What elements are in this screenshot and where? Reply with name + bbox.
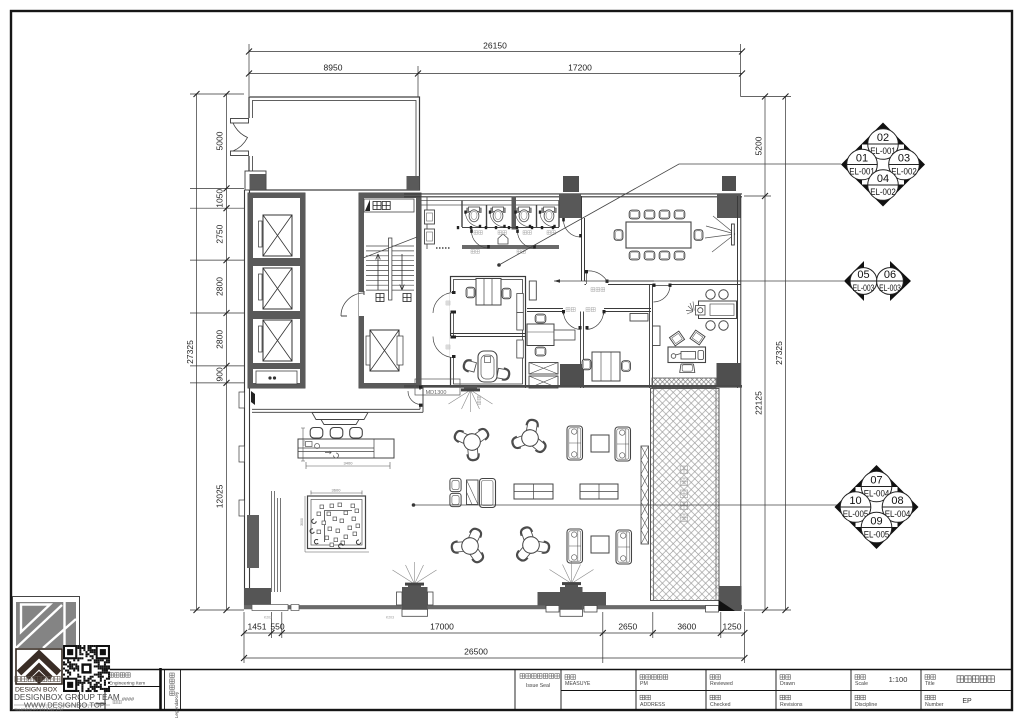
svg-text:09: 09	[870, 516, 882, 528]
svg-text:ADDRESS: ADDRESS	[640, 702, 666, 708]
svg-text:12025: 12025	[215, 484, 225, 508]
svg-text:3600: 3600	[332, 488, 342, 493]
svg-text:Engineering Item: Engineering Item	[109, 681, 145, 687]
svg-text:27325: 27325	[185, 340, 195, 364]
svg-text:MD1300: MD1300	[426, 390, 447, 396]
svg-text:Title: Title	[925, 681, 935, 687]
svg-text:Checked: Checked	[710, 702, 731, 708]
svg-text:1250: 1250	[723, 622, 742, 632]
svg-text:EL-003: EL-003	[853, 283, 875, 293]
svg-text:3600: 3600	[677, 622, 696, 632]
svg-text:Number: Number	[925, 702, 944, 708]
svg-text:Reviewed: Reviewed	[710, 681, 733, 687]
svg-text:08: 08	[891, 495, 903, 507]
svg-text:TEL&WECHAT 171-5489-5467: TEL&WECHAT 171-5489-5467	[14, 708, 64, 712]
svg-text:27325: 27325	[774, 341, 784, 365]
svg-text:Drawn: Drawn	[780, 681, 795, 687]
svg-text:5200: 5200	[754, 136, 764, 155]
svg-text:3000: 3000	[300, 518, 304, 526]
svg-text:5000: 5000	[215, 131, 225, 150]
svg-text:####: ####	[122, 697, 135, 703]
svg-text:22125: 22125	[754, 391, 764, 415]
svg-text:Scale: Scale	[855, 681, 868, 687]
svg-text:Legend&Key: Legend&Key	[174, 691, 179, 718]
svg-text:MEASUYE: MEASUYE	[565, 681, 591, 687]
svg-text:06: 06	[884, 269, 896, 281]
svg-text:550: 550	[270, 622, 284, 632]
svg-text:Issue Seal: Issue Seal	[526, 683, 550, 689]
svg-text:05: 05	[857, 269, 869, 281]
svg-text:26500: 26500	[464, 647, 488, 657]
svg-text:K202: K202	[264, 616, 272, 620]
svg-text:EL-003: EL-003	[879, 283, 901, 293]
svg-text:3400: 3400	[344, 461, 354, 466]
svg-text:10: 10	[849, 495, 861, 507]
svg-text:17000: 17000	[430, 622, 454, 632]
svg-text:02: 02	[877, 132, 889, 144]
svg-text:04: 04	[877, 173, 889, 185]
svg-text:K203: K203	[386, 616, 394, 620]
svg-text:2800: 2800	[215, 277, 225, 296]
svg-text:PM: PM	[640, 681, 648, 687]
svg-text:EL-002: EL-002	[870, 187, 896, 197]
svg-text:8950: 8950	[324, 63, 343, 73]
svg-text:2800: 2800	[215, 330, 225, 349]
svg-text:900: 900	[215, 367, 225, 381]
svg-text:03: 03	[898, 153, 910, 165]
svg-text:600: 600	[302, 440, 306, 446]
svg-text:Revisions: Revisions	[780, 702, 803, 708]
svg-text:17200: 17200	[568, 63, 592, 73]
svg-text:26150: 26150	[483, 41, 507, 51]
svg-text:2750: 2750	[215, 224, 225, 243]
svg-text:Discipline: Discipline	[855, 702, 877, 708]
svg-text:2650: 2650	[618, 622, 637, 632]
svg-text:01: 01	[856, 153, 868, 165]
svg-text:1451: 1451	[248, 622, 267, 632]
svg-text:1050: 1050	[215, 189, 225, 208]
svg-text:07: 07	[870, 475, 882, 487]
svg-text:1:100: 1:100	[889, 675, 908, 684]
svg-text:EP: EP	[962, 698, 972, 705]
svg-text:EL-005: EL-005	[864, 530, 890, 540]
